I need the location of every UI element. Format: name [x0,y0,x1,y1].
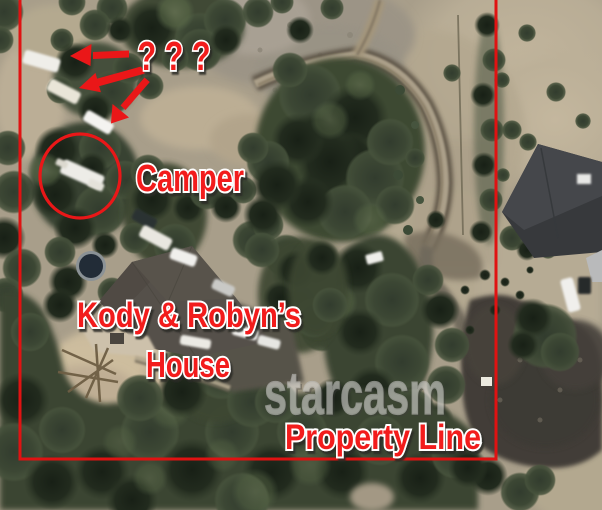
svg-text:Property Line: Property Line [285,418,481,457]
svg-text:starcasm: starcasm [264,360,446,427]
svg-text:Camper: Camper [136,158,244,200]
svg-text:? ? ?: ? ? ? [138,33,211,79]
svg-text:House: House [146,344,230,385]
svg-text:Kody & Robyn’s: Kody & Robyn’s [77,296,301,335]
